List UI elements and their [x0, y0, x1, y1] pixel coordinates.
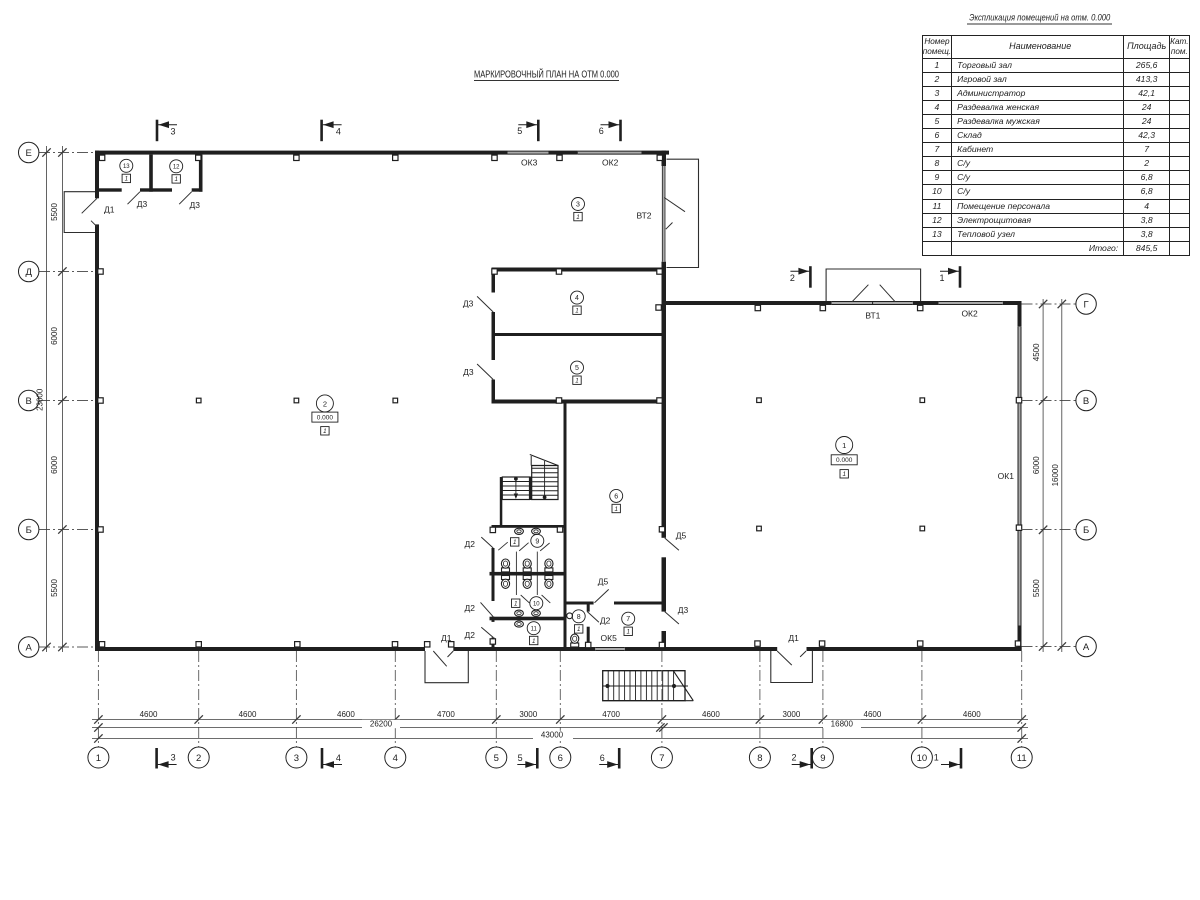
svg-text:4: 4: [336, 753, 341, 763]
svg-text:Д5: Д5: [676, 531, 687, 541]
svg-text:7: 7: [659, 753, 664, 764]
svg-text:1: 1: [174, 176, 177, 183]
svg-text:ОК2: ОК2: [961, 308, 978, 318]
svg-text:12: 12: [173, 165, 180, 171]
svg-text:Д5: Д5: [598, 576, 609, 586]
svg-text:2: 2: [790, 273, 795, 283]
svg-text:Экспликация помещений на отм.: Экспликация помещений на отм. 0.000: [969, 13, 1110, 23]
svg-text:6000: 6000: [50, 456, 59, 474]
svg-text:11: 11: [531, 626, 538, 632]
svg-text:1: 1: [576, 214, 579, 221]
svg-text:5: 5: [518, 753, 523, 763]
svg-text:2: 2: [791, 752, 796, 762]
svg-text:10: 10: [917, 753, 928, 764]
svg-text:9: 9: [535, 538, 539, 545]
svg-text:6: 6: [558, 753, 563, 764]
svg-text:8: 8: [577, 614, 581, 621]
svg-text:ОК3: ОК3: [521, 158, 538, 168]
svg-text:ВТ1: ВТ1: [865, 311, 880, 321]
svg-text:13: 13: [123, 164, 130, 170]
svg-text:Е: Е: [26, 148, 32, 159]
svg-text:ОК5: ОК5: [601, 633, 618, 643]
svg-text:23000: 23000: [36, 388, 45, 411]
svg-text:Д3: Д3: [463, 367, 474, 377]
svg-text:6000: 6000: [1032, 456, 1041, 474]
svg-text:1: 1: [577, 626, 580, 633]
svg-text:1: 1: [125, 176, 128, 183]
svg-text:6: 6: [614, 493, 618, 500]
svg-text:10: 10: [533, 602, 540, 608]
svg-text:1: 1: [939, 273, 944, 283]
svg-text:1: 1: [323, 428, 326, 435]
svg-text:7: 7: [626, 616, 630, 623]
svg-text:ОК1: ОК1: [998, 471, 1015, 481]
svg-text:Д2: Д2: [464, 603, 475, 613]
svg-text:5: 5: [517, 126, 522, 136]
svg-text:0.000: 0.000: [317, 415, 334, 422]
svg-text:8: 8: [757, 753, 762, 764]
svg-text:1: 1: [626, 629, 629, 636]
svg-text:Д2: Д2: [464, 539, 475, 549]
svg-text:16800: 16800: [831, 720, 854, 729]
svg-text:26200: 26200: [370, 720, 393, 729]
svg-text:Д: Д: [25, 267, 32, 278]
svg-text:5: 5: [575, 365, 579, 372]
svg-text:16000: 16000: [1051, 464, 1060, 487]
svg-text:4600: 4600: [963, 710, 981, 719]
svg-text:Б: Б: [26, 525, 32, 536]
svg-text:4700: 4700: [437, 710, 455, 719]
svg-text:Г: Г: [1084, 299, 1089, 310]
svg-text:Д2: Д2: [464, 630, 475, 640]
svg-text:3000: 3000: [519, 710, 537, 719]
svg-text:5500: 5500: [50, 579, 59, 597]
svg-text:11: 11: [1017, 753, 1027, 764]
svg-text:Д3: Д3: [678, 605, 689, 615]
svg-text:ОК2: ОК2: [602, 158, 619, 168]
svg-text:1: 1: [575, 378, 578, 385]
svg-text:4: 4: [575, 295, 579, 302]
svg-text:4600: 4600: [702, 710, 720, 719]
svg-text:3: 3: [171, 753, 176, 763]
svg-text:А: А: [1083, 642, 1090, 653]
svg-text:6: 6: [599, 126, 604, 136]
svg-text:3: 3: [576, 202, 580, 209]
svg-text:1: 1: [934, 752, 939, 762]
svg-text:1: 1: [532, 638, 535, 645]
svg-text:4600: 4600: [140, 710, 158, 719]
svg-text:1: 1: [96, 753, 101, 764]
svg-text:4600: 4600: [337, 710, 355, 719]
svg-text:5500: 5500: [50, 203, 59, 221]
svg-text:3: 3: [170, 127, 175, 137]
svg-text:1: 1: [842, 441, 846, 450]
svg-text:МАРКИРОВОЧНЫЙ ПЛАН НА ОТМ 0.00: МАРКИРОВОЧНЫЙ ПЛАН НА ОТМ 0.000: [474, 68, 619, 81]
svg-text:Б: Б: [1083, 525, 1089, 536]
svg-text:4500: 4500: [1032, 343, 1041, 361]
svg-text:3: 3: [294, 753, 299, 764]
svg-text:6000: 6000: [50, 327, 59, 345]
svg-text:9: 9: [820, 753, 825, 764]
svg-text:ВТ2: ВТ2: [636, 211, 651, 221]
svg-text:0.000: 0.000: [836, 457, 853, 464]
svg-text:В: В: [26, 396, 32, 407]
svg-text:1: 1: [514, 601, 517, 608]
svg-text:1: 1: [842, 471, 845, 478]
svg-text:Д3: Д3: [189, 200, 200, 210]
svg-text:А: А: [26, 642, 33, 653]
svg-text:1: 1: [575, 308, 578, 315]
svg-text:6: 6: [600, 753, 605, 763]
svg-text:4: 4: [336, 127, 341, 137]
svg-text:2: 2: [196, 753, 201, 764]
svg-text:В: В: [1083, 396, 1089, 407]
svg-text:Д1: Д1: [104, 205, 115, 215]
svg-text:43000: 43000: [541, 731, 564, 740]
svg-text:4: 4: [393, 753, 398, 764]
svg-text:2: 2: [323, 399, 327, 408]
svg-text:Д3: Д3: [463, 299, 474, 309]
svg-text:5500: 5500: [1032, 579, 1041, 597]
svg-text:1: 1: [614, 506, 617, 513]
svg-text:1: 1: [513, 539, 516, 546]
svg-text:4600: 4600: [864, 710, 882, 719]
svg-text:Д2: Д2: [600, 616, 611, 626]
svg-text:3000: 3000: [783, 710, 801, 719]
svg-text:5: 5: [494, 753, 499, 764]
svg-text:Д1: Д1: [788, 633, 799, 643]
svg-text:4700: 4700: [602, 710, 620, 719]
svg-text:4600: 4600: [239, 710, 257, 719]
svg-text:Д3: Д3: [137, 199, 148, 209]
